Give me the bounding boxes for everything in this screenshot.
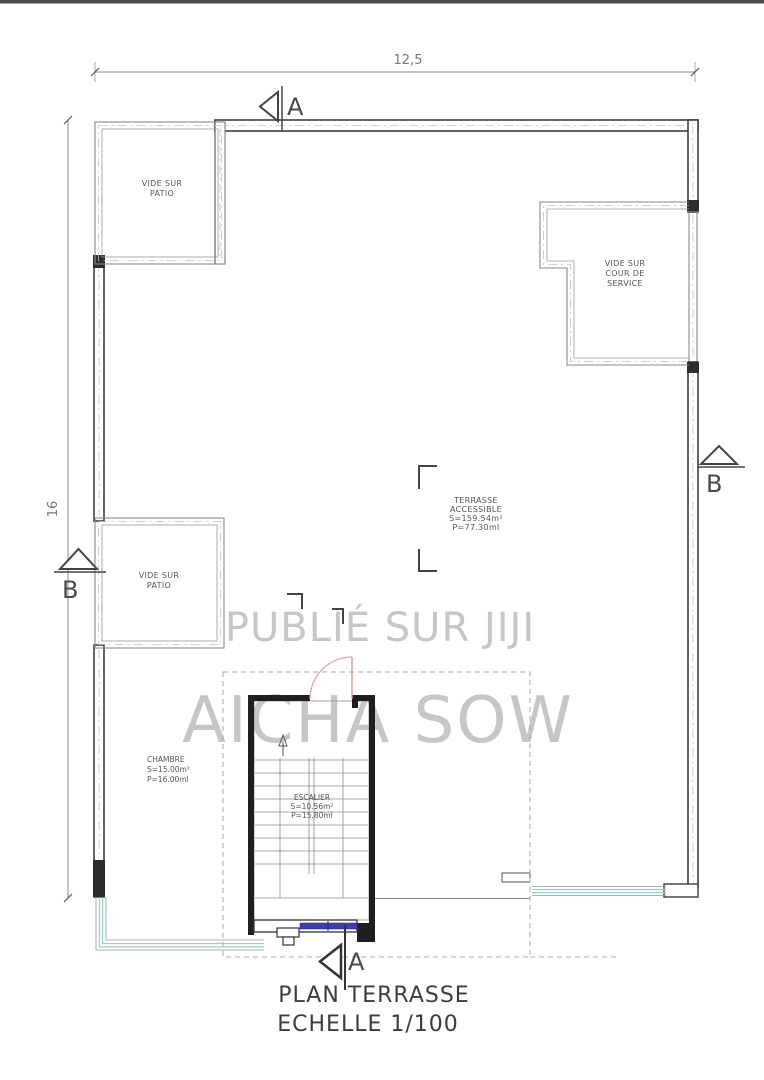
cour-label-2: COUR DE: [605, 269, 644, 278]
photo-top-edge: [0, 0, 764, 4]
section-marker-a-top-letter: A: [287, 93, 304, 121]
patio-top-label-1: VIDE SUR: [142, 179, 183, 188]
floorplan-drawing: 12,5 16: [0, 0, 764, 1080]
watermark-aicha-sow: AICHA SOW: [182, 684, 574, 758]
terrasse-label-2: ACCESSIBLE: [450, 505, 502, 514]
corner-bracket-1: [419, 466, 437, 489]
window-bottom-right: [532, 887, 666, 896]
section-triangle-icon: [320, 945, 341, 978]
chambre-area: CHAMBRE S=15.00m² P=16.00ml: [147, 755, 190, 784]
section-triangle-icon: [260, 92, 278, 121]
chambre-label-1: CHAMBRE: [147, 755, 185, 764]
dimension-left: 16: [46, 116, 72, 902]
dimension-top: 12,5: [91, 53, 699, 82]
patio-mid-left: VIDE SUR PATIO: [95, 518, 224, 648]
watermark-publie-sur-jiji: PUBLIÉ SUR JIJI: [225, 603, 535, 651]
terrasse-label-3: S=159.54m²: [449, 514, 503, 523]
terrasse-area: TERRASSE ACCESSIBLE S=159.54m² P=77.30ml: [287, 466, 503, 624]
cour-de-service: VIDE SUR COUR DE SERVICE: [540, 202, 689, 365]
patio-top-label-2: PATIO: [150, 189, 174, 198]
dimension-left-value: 16: [46, 501, 61, 518]
window-bottom-left: [96, 897, 264, 950]
escalier-label-1: ESCALIER: [294, 793, 330, 802]
dimension-top-value: 12,5: [394, 53, 423, 68]
chambre-label-2: S=15.00m²: [147, 765, 190, 774]
patio-top-left: VIDE SUR PATIO: [95, 122, 225, 264]
section-triangle-icon: [60, 549, 97, 569]
escalier-label-3: P=15.80ml: [291, 811, 333, 820]
section-marker-a-bottom-letter: A: [348, 948, 365, 976]
escalier-label-2: S=10.56m²: [291, 802, 334, 811]
plan-scale: ECHELLE 1/100: [277, 1012, 459, 1037]
plan-title: PLAN TERRASSE: [278, 983, 469, 1008]
corner-bracket-2: [419, 549, 437, 571]
patio-mid-label-1: VIDE SUR: [139, 571, 180, 580]
section-marker-b-left: B: [54, 549, 106, 604]
section-marker-b-right-letter: B: [706, 470, 722, 498]
patio-mid-label-2: PATIO: [147, 581, 171, 590]
wall-cap-bottom-center: [502, 873, 530, 882]
stair-treads: [255, 758, 368, 898]
section-marker-b-left-letter: B: [62, 576, 78, 604]
chambre-label-3: P=16.00ml: [147, 775, 189, 784]
terrasse-label-1: TERRASSE: [453, 496, 498, 505]
terrasse-label-4: P=77.30ml: [452, 523, 499, 532]
cour-label-3: SERVICE: [607, 279, 643, 288]
floorplan-page: 12,5 16: [0, 0, 764, 1080]
wall-corner-bottom-right: [664, 884, 698, 897]
cour-label-1: VIDE SUR: [605, 259, 646, 268]
section-marker-b-right: B: [697, 446, 745, 498]
section-triangle-icon: [701, 446, 737, 464]
